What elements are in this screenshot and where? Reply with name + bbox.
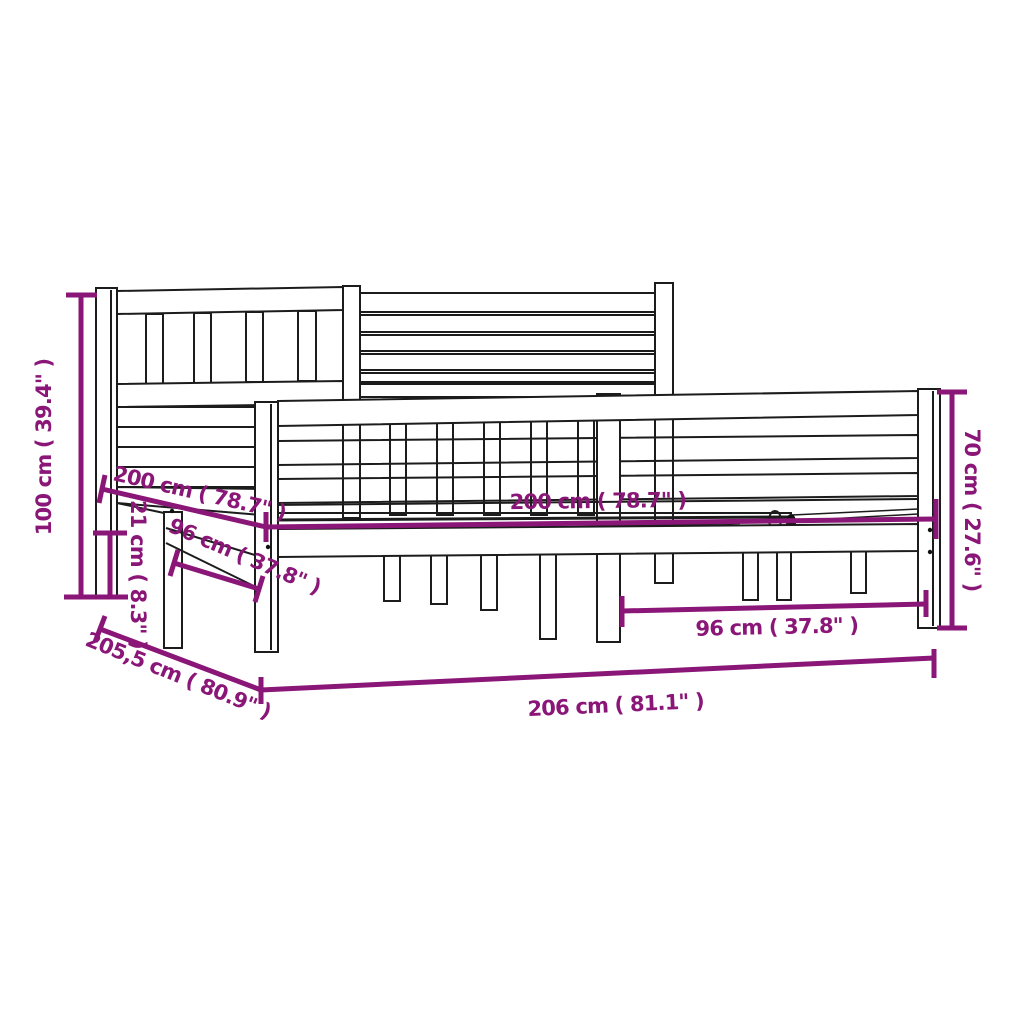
dimension-diagram: 100 cm ( 39.4" ) 200 cm ( 78.7" ) 21 cm … (0, 0, 1024, 1024)
label-width-overall: 206 cm ( 81.1" ) (527, 689, 704, 721)
headboard-slats (146, 311, 316, 384)
label-footboard-height: 70 cm ( 27.6" ) (960, 429, 984, 592)
bed-frame-diagram-canvas: 100 cm ( 39.4" ) 200 cm ( 78.7" ) 21 cm … (0, 0, 1024, 1024)
headboard-top-rail (117, 287, 343, 314)
label-width-center: 200 cm ( 78.7" ) (509, 488, 686, 514)
headboard-right-boards (360, 293, 655, 397)
label-headboard-height: 100 cm ( 39.4" ) (32, 359, 56, 536)
label-side-rail-height: 21 cm ( 8.3" ) (126, 500, 150, 649)
headboard-left-post (96, 288, 117, 598)
dim-width-overall (261, 649, 934, 690)
label-leg-span-right: 96 cm ( 37.8" ) (695, 613, 858, 641)
footboard-bottom-rail (278, 524, 918, 557)
